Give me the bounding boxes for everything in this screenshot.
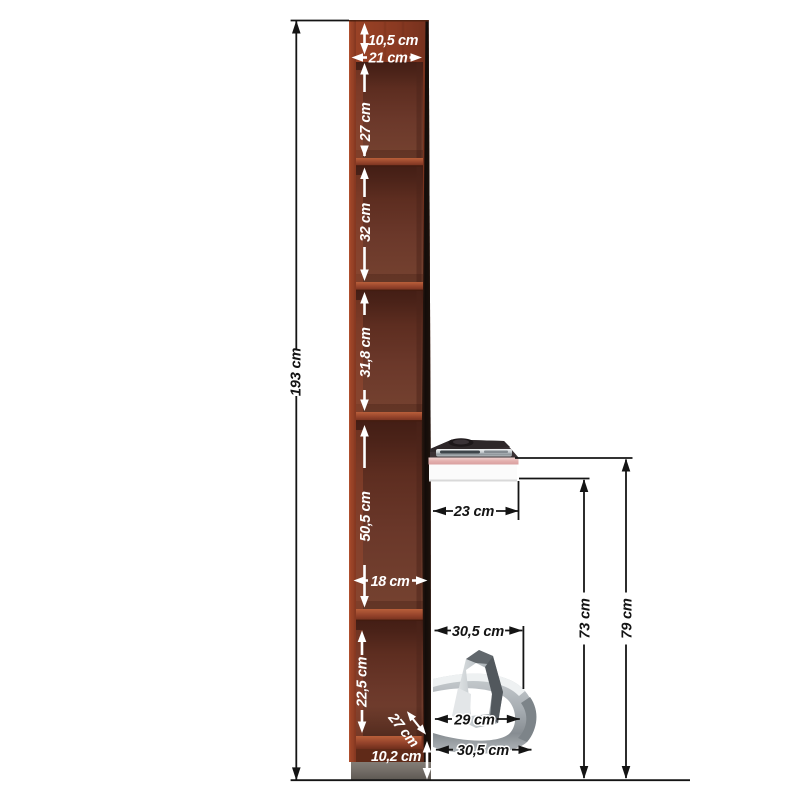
- svg-text:23 cm: 23 cm: [453, 504, 495, 520]
- svg-text:30,5 cm: 30,5 cm: [457, 743, 509, 759]
- svg-text:32 cm: 32 cm: [358, 202, 374, 241]
- svg-text:27 cm: 27 cm: [358, 102, 374, 142]
- svg-text:22,5 cm: 22,5 cm: [355, 656, 371, 708]
- svg-text:31,8 cm: 31,8 cm: [358, 327, 374, 378]
- svg-text:29 cm: 29 cm: [453, 713, 495, 729]
- svg-text:193 cm: 193 cm: [289, 348, 305, 397]
- svg-text:10,2 cm: 10,2 cm: [371, 749, 422, 765]
- svg-text:79 cm: 79 cm: [620, 598, 636, 639]
- svg-text:50,5 cm: 50,5 cm: [358, 491, 374, 542]
- svg-text:18 cm: 18 cm: [371, 574, 410, 590]
- svg-text:21 cm: 21 cm: [368, 51, 408, 67]
- svg-text:30,5 cm: 30,5 cm: [452, 624, 504, 640]
- svg-text:73 cm: 73 cm: [578, 598, 594, 639]
- svg-text:10,5 cm: 10,5 cm: [368, 33, 419, 49]
